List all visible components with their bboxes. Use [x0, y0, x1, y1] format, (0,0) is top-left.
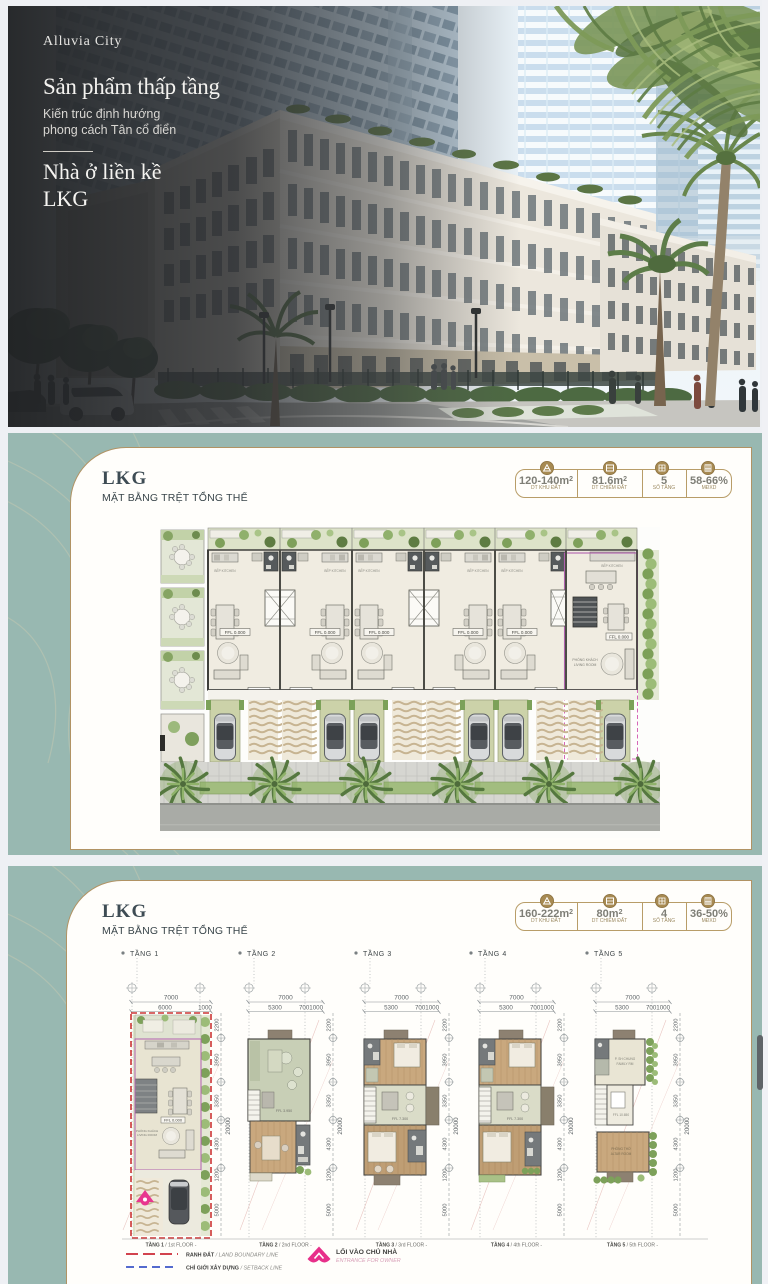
- svg-text:7001000: 7001000: [646, 1005, 671, 1012]
- svg-text:3950: 3950: [443, 1054, 449, 1067]
- svg-text:1200: 1200: [674, 1169, 680, 1182]
- svg-text:3950: 3950: [558, 1054, 564, 1067]
- svg-text:5000: 5000: [215, 1204, 221, 1217]
- svg-text:1200: 1200: [443, 1169, 449, 1182]
- svg-text:TẦNG 5: TẦNG 5: [594, 948, 623, 958]
- svg-text:FFL 0.000: FFL 0.000: [225, 630, 246, 635]
- svg-text:3350: 3350: [327, 1095, 333, 1108]
- svg-text:P. SH CHUNG: P. SH CHUNG: [615, 1057, 636, 1061]
- svg-text:BẾP KITCHEN: BẾP KITCHEN: [501, 568, 523, 573]
- svg-text:3950: 3950: [674, 1054, 680, 1067]
- svg-text:FFL 3.950: FFL 3.950: [276, 1109, 292, 1113]
- svg-text:BẾP KITCHEN: BẾP KITCHEN: [214, 568, 236, 573]
- svg-text:TẦNG 3: TẦNG 3: [363, 948, 392, 958]
- svg-text:2200: 2200: [558, 1019, 564, 1032]
- svg-text:PHÒNG THỜ: PHÒNG THỜ: [611, 1146, 631, 1151]
- svg-text:20000: 20000: [453, 1117, 460, 1135]
- svg-text:20000: 20000: [337, 1117, 344, 1135]
- svg-text:3350: 3350: [215, 1095, 221, 1108]
- svg-text:FFL 10.650: FFL 10.650: [613, 1113, 629, 1117]
- svg-text:FAMILY RM: FAMILY RM: [617, 1062, 634, 1066]
- svg-text:TẦNG 2 / 2nd FLOOR -: TẦNG 2 / 2nd FLOOR -: [259, 1242, 312, 1249]
- svg-text:FFL 7.300: FFL 7.300: [507, 1117, 523, 1121]
- svg-text:20000: 20000: [684, 1117, 691, 1135]
- svg-text:4300: 4300: [327, 1138, 333, 1151]
- svg-text:5000: 5000: [443, 1204, 449, 1217]
- svg-text:PHÒNG KHÁCH: PHÒNG KHÁCH: [572, 657, 598, 662]
- svg-text:7000: 7000: [509, 995, 524, 1002]
- svg-text:5000: 5000: [558, 1204, 564, 1217]
- svg-text:7000: 7000: [164, 995, 179, 1002]
- svg-text:TẦNG 3 / 3rd FLOOR -: TẦNG 3 / 3rd FLOOR -: [376, 1242, 428, 1249]
- svg-text:3350: 3350: [674, 1095, 680, 1108]
- svg-text:7000: 7000: [278, 995, 293, 1002]
- svg-text:5000: 5000: [327, 1204, 333, 1217]
- svg-text:FFL 7.300: FFL 7.300: [392, 1117, 408, 1121]
- svg-text:BẾP KITCHEN: BẾP KITCHEN: [467, 568, 489, 573]
- svg-text:7001000: 7001000: [299, 1005, 324, 1012]
- svg-text:CHỈ GIỚI XÂY DỰNG / SETBACK LI: CHỈ GIỚI XÂY DỰNG / SETBACK LINE: [186, 1264, 283, 1272]
- svg-text:4300: 4300: [443, 1138, 449, 1151]
- svg-text:BẾP KITCHEN: BẾP KITCHEN: [358, 568, 380, 573]
- svg-text:7000: 7000: [394, 995, 409, 1002]
- svg-text:FFL 0.000: FFL 0.000: [609, 634, 629, 639]
- svg-text:3950: 3950: [327, 1054, 333, 1067]
- svg-text:20000: 20000: [568, 1117, 575, 1135]
- svg-text:7001000: 7001000: [530, 1005, 555, 1012]
- svg-text:TẦNG 4 / 4th FLOOR -: TẦNG 4 / 4th FLOOR -: [491, 1242, 542, 1249]
- svg-text:4300: 4300: [558, 1138, 564, 1151]
- svg-text:TẦNG 1 / 1st FLOOR -: TẦNG 1 / 1st FLOOR -: [146, 1242, 197, 1249]
- svg-text:ALTAR ROOM: ALTAR ROOM: [611, 1152, 632, 1156]
- svg-text:3350: 3350: [558, 1095, 564, 1108]
- svg-text:5300: 5300: [499, 1005, 513, 1012]
- svg-text:5000: 5000: [674, 1204, 680, 1217]
- svg-text:FFL 0.000: FFL 0.000: [369, 630, 390, 635]
- svg-text:1200: 1200: [327, 1169, 333, 1182]
- svg-text:BẾP KITCHEN: BẾP KITCHEN: [324, 568, 346, 573]
- svg-text:LIVING ROOM: LIVING ROOM: [574, 663, 597, 667]
- svg-text:TẦNG 4: TẦNG 4: [478, 948, 507, 958]
- svg-text:1200: 1200: [558, 1169, 564, 1182]
- svg-text:TẦNG 5 / 5th FLOOR -: TẦNG 5 / 5th FLOOR -: [607, 1242, 658, 1249]
- svg-text:3350: 3350: [443, 1095, 449, 1108]
- svg-text:ENTRANCE FOR OWNER: ENTRANCE FOR OWNER: [336, 1258, 401, 1264]
- svg-text:FFL 0.000: FFL 0.000: [512, 630, 533, 635]
- svg-text:TẦNG 2: TẦNG 2: [247, 948, 276, 958]
- svg-text:5300: 5300: [268, 1005, 282, 1012]
- svg-text:BẾP KITCHEN: BẾP KITCHEN: [601, 563, 623, 568]
- svg-text:4300: 4300: [674, 1138, 680, 1151]
- svg-text:2200: 2200: [327, 1019, 333, 1032]
- svg-text:FFL 0.000: FFL 0.000: [458, 630, 479, 635]
- svg-text:RANH ĐẤT / LAND BOUNDARY LINE: RANH ĐẤT / LAND BOUNDARY LINE: [186, 1252, 279, 1259]
- svg-text:6000: 6000: [158, 1005, 172, 1012]
- svg-text:1200: 1200: [215, 1169, 221, 1182]
- svg-text:TẦNG 1: TẦNG 1: [130, 948, 159, 958]
- svg-text:FFL 0.000: FFL 0.000: [315, 630, 336, 635]
- svg-text:5300: 5300: [615, 1005, 629, 1012]
- svg-text:5300: 5300: [384, 1005, 398, 1012]
- svg-text:7000: 7000: [625, 995, 640, 1002]
- svg-text:FFL 0.000: FFL 0.000: [164, 1118, 183, 1123]
- svg-text:2200: 2200: [443, 1019, 449, 1032]
- svg-text:3950: 3950: [215, 1054, 221, 1067]
- svg-text:20000: 20000: [225, 1117, 232, 1135]
- svg-text:2200: 2200: [215, 1019, 221, 1032]
- svg-text:7001000: 7001000: [415, 1005, 440, 1012]
- svg-text:LIVING ROOM: LIVING ROOM: [137, 1133, 158, 1137]
- svg-text:4300: 4300: [215, 1138, 221, 1151]
- svg-text:2200: 2200: [674, 1019, 680, 1032]
